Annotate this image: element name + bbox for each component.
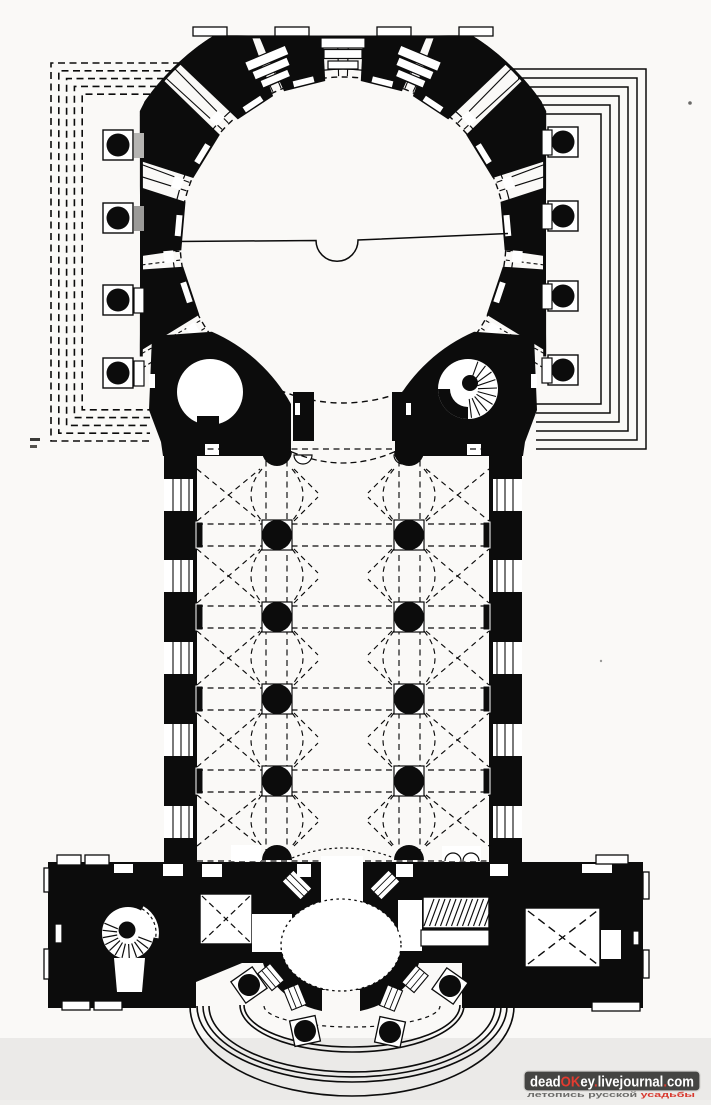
svg-text:летопись русской усадьбы: летопись русской усадьбы xyxy=(527,1090,695,1099)
svg-text:deadOKey.livejournal.com: deadOKey.livejournal.com xyxy=(530,1074,694,1091)
